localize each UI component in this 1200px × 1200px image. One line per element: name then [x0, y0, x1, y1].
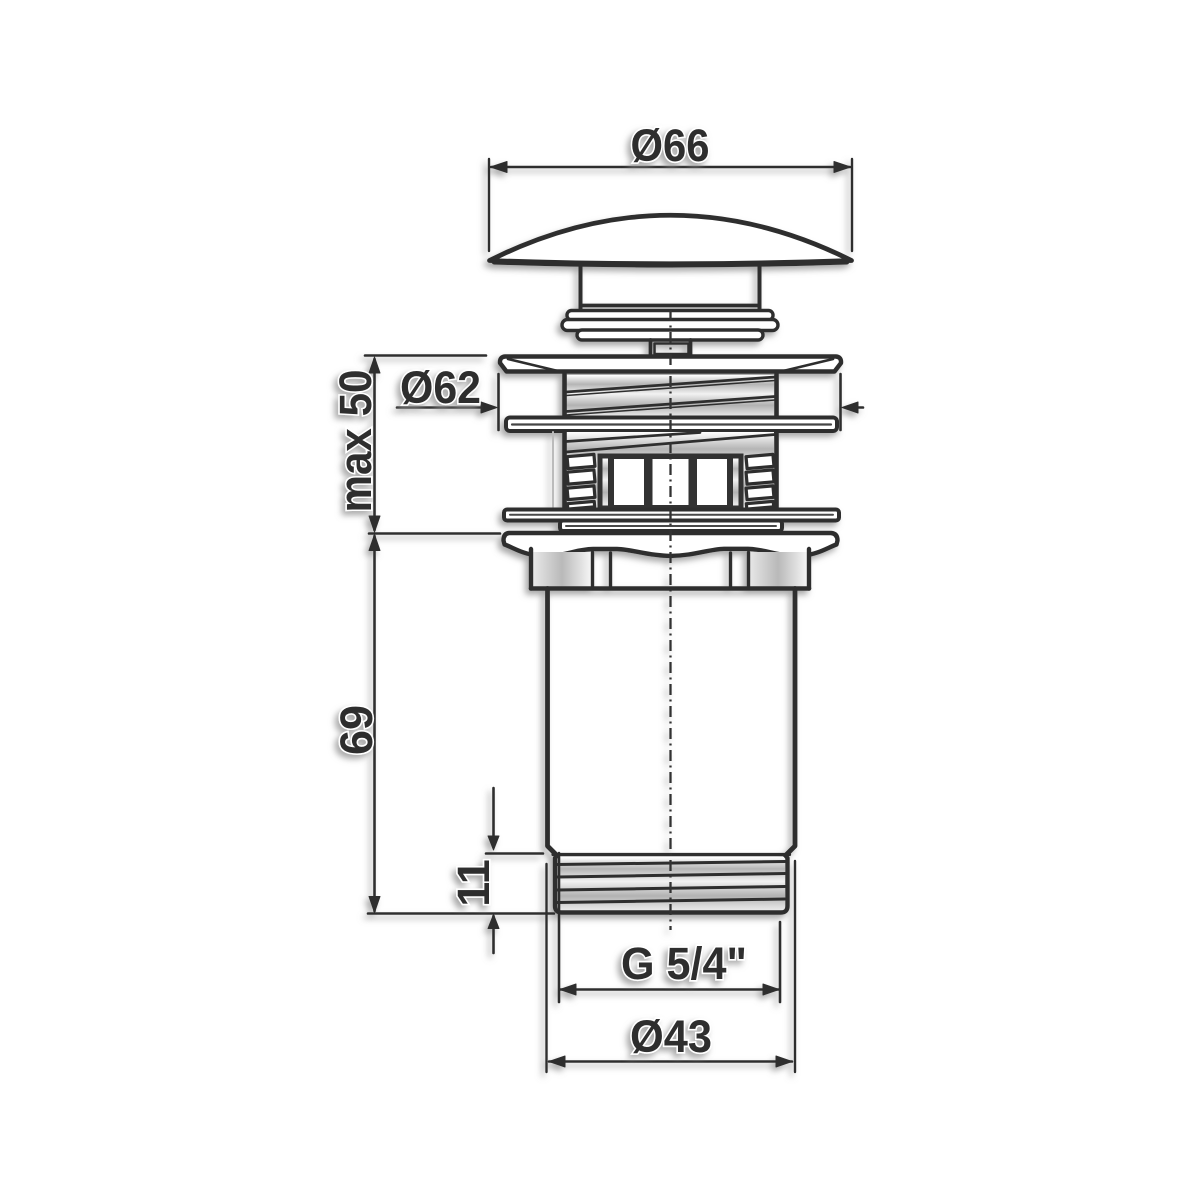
- svg-text:max 50: max 50: [330, 370, 381, 513]
- svg-text:Ø62: Ø62: [400, 362, 481, 413]
- svg-text:Ø43: Ø43: [630, 1011, 712, 1062]
- svg-text:11: 11: [448, 859, 499, 907]
- svg-text:Ø66: Ø66: [631, 120, 710, 171]
- svg-text:G 5/4": G 5/4": [621, 938, 747, 989]
- svg-text:69: 69: [331, 705, 382, 755]
